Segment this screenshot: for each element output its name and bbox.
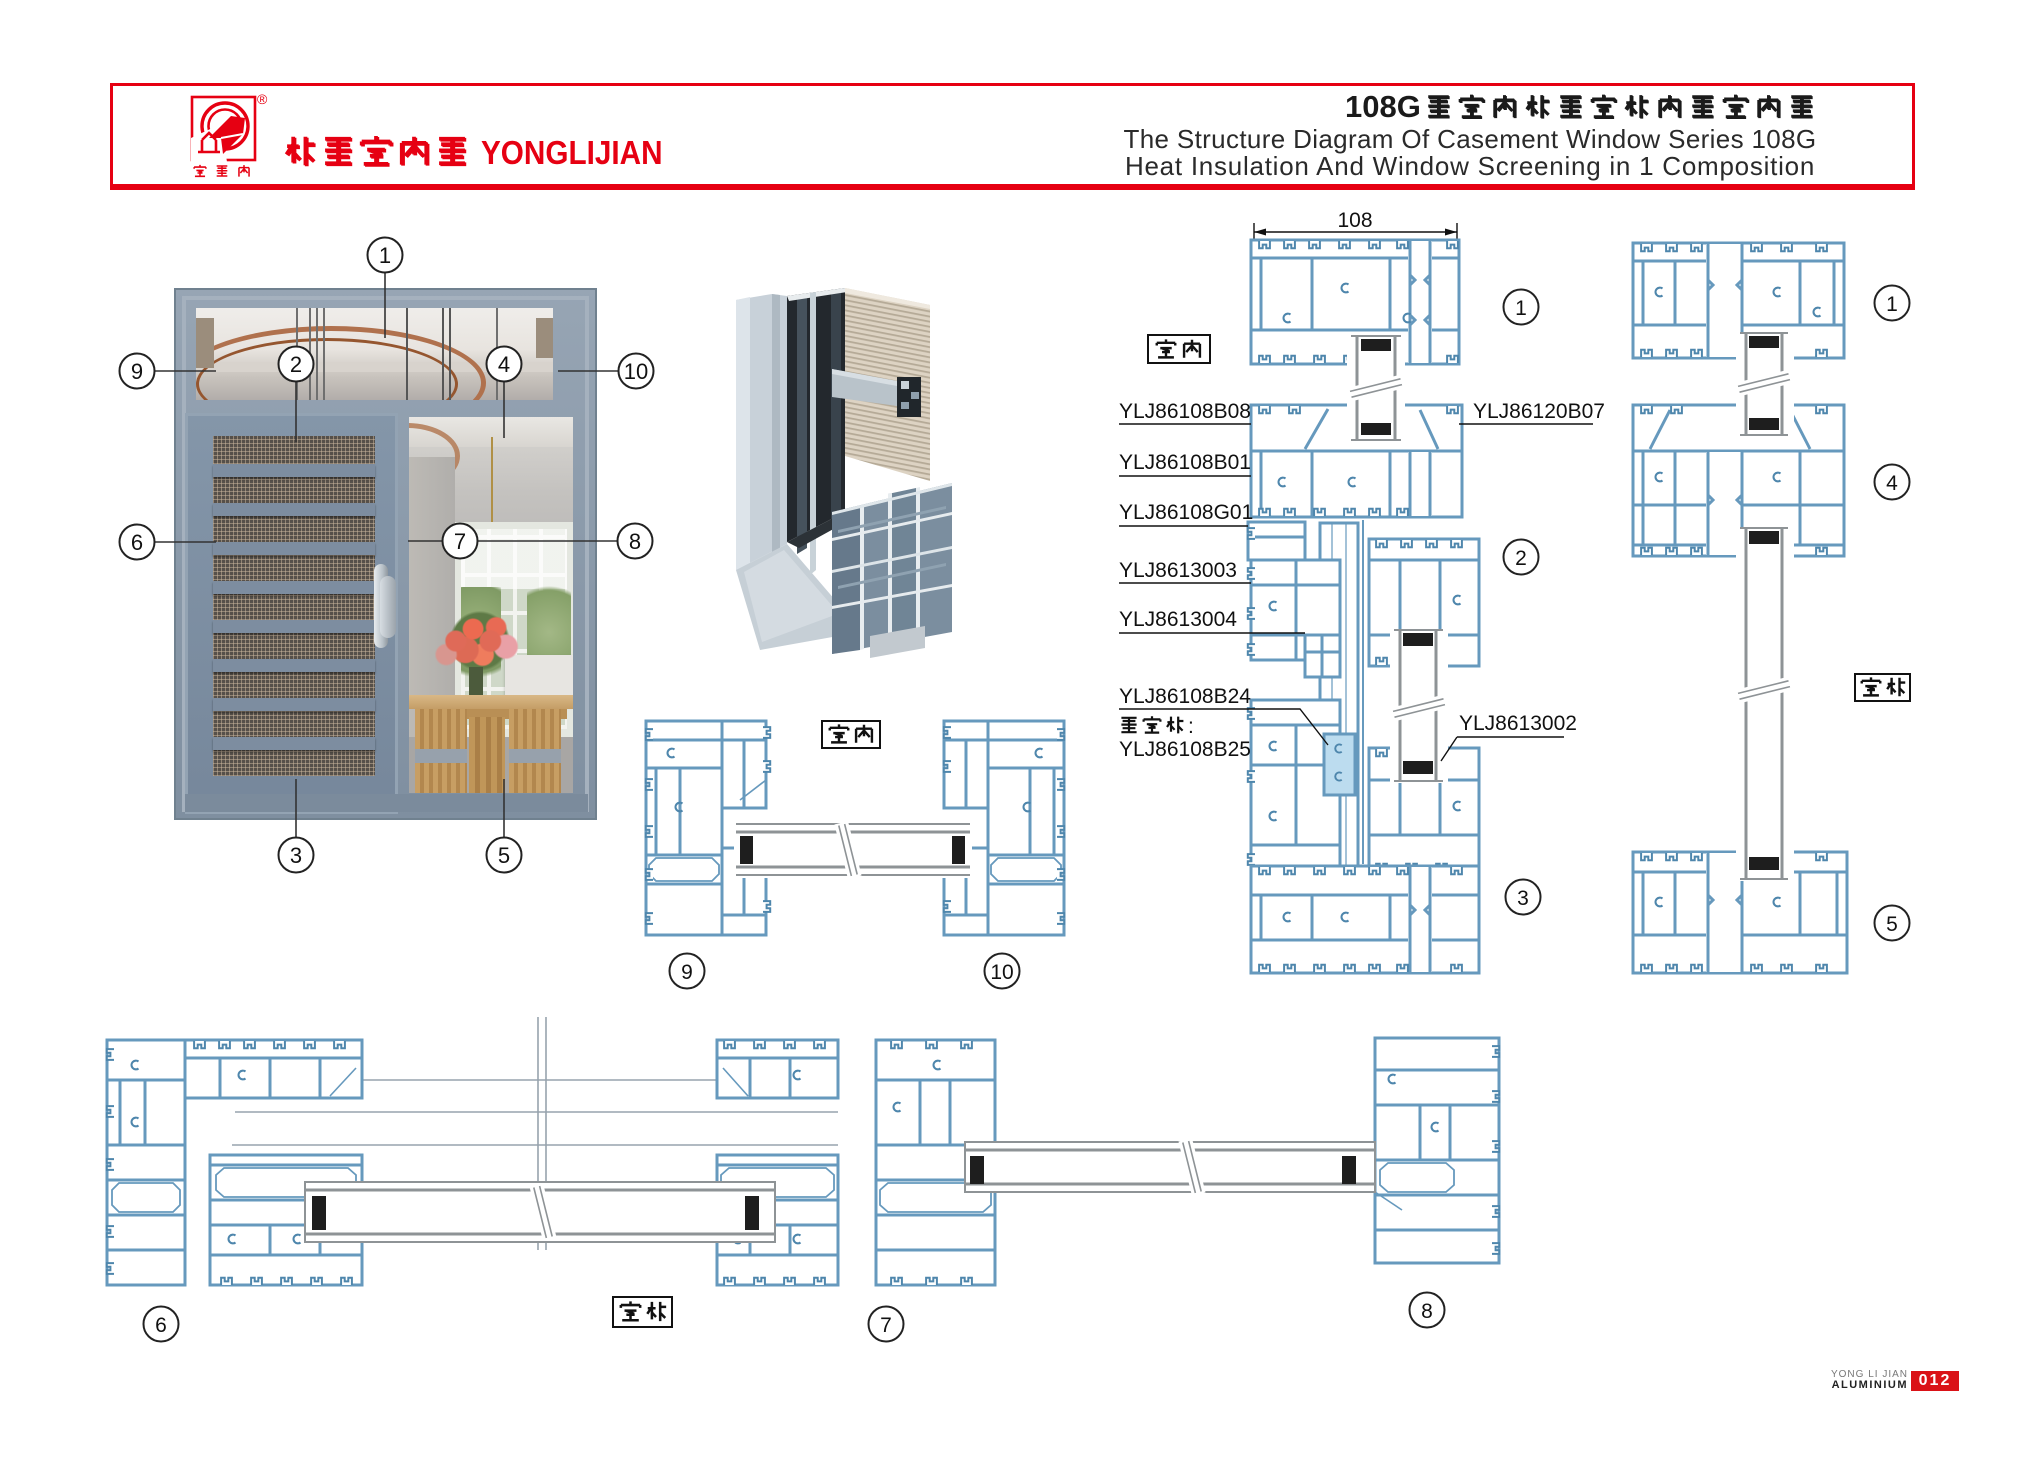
svg-text:YLJ86108B25: YLJ86108B25: [1119, 738, 1251, 761]
svg-text:5: 5: [1886, 913, 1898, 936]
svg-text:108G: 108G: [1345, 92, 1421, 122]
svg-text:6: 6: [155, 1314, 167, 1337]
svg-text:9: 9: [681, 961, 693, 984]
svg-text:1: 1: [1886, 293, 1898, 316]
svg-text:9: 9: [131, 359, 143, 384]
svg-text:8: 8: [1421, 1300, 1433, 1323]
svg-text:1: 1: [379, 243, 391, 268]
svg-text:YLJ86108B01: YLJ86108B01: [1119, 451, 1251, 474]
svg-text:YLJ8613003: YLJ8613003: [1119, 559, 1237, 582]
svg-text:®: ®: [257, 91, 268, 107]
svg-text:5: 5: [498, 843, 510, 868]
svg-text:4: 4: [498, 352, 510, 377]
svg-text:3: 3: [1517, 887, 1529, 910]
svg-text:2: 2: [290, 352, 302, 377]
svg-text:6: 6: [131, 530, 143, 555]
svg-text:8: 8: [629, 529, 641, 554]
svg-text:10: 10: [624, 359, 648, 384]
svg-text:1: 1: [1515, 297, 1527, 320]
svg-text:10: 10: [990, 961, 1013, 984]
svg-text:4: 4: [1886, 472, 1898, 495]
svg-text:108: 108: [1337, 209, 1372, 232]
svg-text::: :: [1188, 715, 1194, 738]
svg-text:7: 7: [880, 1314, 892, 1337]
svg-text:7: 7: [454, 529, 466, 554]
svg-text:YLJ86120B07: YLJ86120B07: [1473, 400, 1605, 423]
svg-text:YLJ86108B08: YLJ86108B08: [1119, 400, 1251, 423]
svg-text:YLJ8613004: YLJ8613004: [1119, 608, 1237, 631]
svg-text:YLJ8613002: YLJ8613002: [1459, 712, 1577, 735]
svg-text:YLJ86108B24: YLJ86108B24: [1119, 685, 1251, 708]
svg-text:YLJ86108G01: YLJ86108G01: [1119, 501, 1253, 524]
svg-text:2: 2: [1515, 547, 1527, 570]
svg-text:3: 3: [290, 843, 302, 868]
